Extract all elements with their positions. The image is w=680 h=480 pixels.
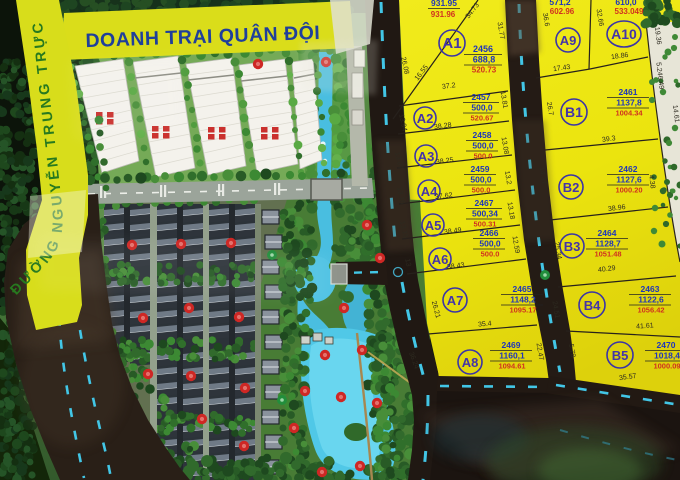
svg-text:520.67: 520.67 [471, 114, 494, 123]
svg-text:B5: B5 [612, 348, 629, 363]
svg-text:610,0: 610,0 [615, 0, 637, 7]
svg-text:2463: 2463 [641, 284, 660, 294]
svg-text:500,0: 500,0 [472, 141, 494, 151]
svg-text:1094.61: 1094.61 [498, 362, 525, 371]
svg-text:500,0: 500,0 [470, 175, 492, 185]
svg-text:B1: B1 [565, 104, 583, 120]
svg-text:2456: 2456 [473, 44, 493, 54]
svg-text:2458: 2458 [473, 130, 492, 140]
svg-text:500,0: 500,0 [479, 239, 501, 249]
svg-text:1137,8: 1137,8 [616, 98, 642, 108]
svg-text:A9: A9 [560, 33, 577, 48]
svg-text:571,2: 571,2 [549, 0, 571, 7]
svg-text:2457: 2457 [472, 92, 491, 102]
svg-text:A8: A8 [462, 355, 479, 370]
svg-text:1128,7: 1128,7 [595, 239, 621, 249]
svg-text:A2: A2 [417, 111, 434, 126]
svg-text:688,8: 688,8 [473, 55, 496, 65]
svg-text:2461: 2461 [619, 87, 638, 97]
svg-text:1056.42: 1056.42 [637, 306, 664, 315]
svg-text:2470: 2470 [657, 340, 676, 350]
svg-text:1160,1: 1160,1 [499, 351, 525, 361]
svg-text:500.0: 500.0 [474, 152, 493, 161]
svg-text:931.95: 931.95 [431, 0, 457, 8]
svg-text:500,0: 500,0 [471, 103, 493, 113]
svg-text:1018,4: 1018,4 [654, 351, 680, 361]
svg-text:A10: A10 [611, 26, 637, 42]
svg-text:1000.09: 1000.09 [653, 362, 680, 371]
svg-text:1095.17: 1095.17 [509, 306, 536, 315]
svg-text:1051.48: 1051.48 [594, 250, 621, 259]
svg-text:2469: 2469 [502, 340, 521, 350]
svg-text:2467: 2467 [475, 198, 494, 208]
svg-text:2464: 2464 [598, 228, 617, 238]
svg-text:B3: B3 [564, 239, 581, 254]
svg-text:500.0: 500.0 [481, 250, 500, 259]
svg-text:1127,6: 1127,6 [616, 175, 642, 185]
svg-text:2459: 2459 [471, 164, 490, 174]
svg-text:2466: 2466 [480, 228, 499, 238]
svg-text:500.0: 500.0 [472, 186, 491, 195]
svg-text:1004.34: 1004.34 [615, 109, 643, 118]
svg-text:2465: 2465 [513, 284, 532, 294]
svg-text:1122,6: 1122,6 [638, 295, 664, 305]
svg-text:602.96: 602.96 [550, 7, 575, 16]
svg-text:2462: 2462 [619, 164, 638, 174]
svg-text:500,34: 500,34 [472, 209, 498, 219]
svg-text:B4: B4 [584, 298, 601, 313]
svg-text:B2: B2 [563, 180, 580, 195]
svg-text:1000.20: 1000.20 [615, 186, 642, 195]
svg-text:1148,2: 1148,2 [510, 295, 536, 305]
svg-text:41.61: 41.61 [636, 322, 654, 330]
svg-text:520.73: 520.73 [472, 66, 497, 75]
svg-text:931.96: 931.96 [431, 10, 456, 19]
svg-text:35.4: 35.4 [478, 320, 492, 328]
svg-text:A5: A5 [425, 218, 442, 233]
svg-text:A1: A1 [442, 35, 461, 52]
svg-text:A7: A7 [447, 293, 464, 308]
svg-text:A3: A3 [418, 149, 435, 164]
svg-text:533.049: 533.049 [615, 7, 644, 16]
